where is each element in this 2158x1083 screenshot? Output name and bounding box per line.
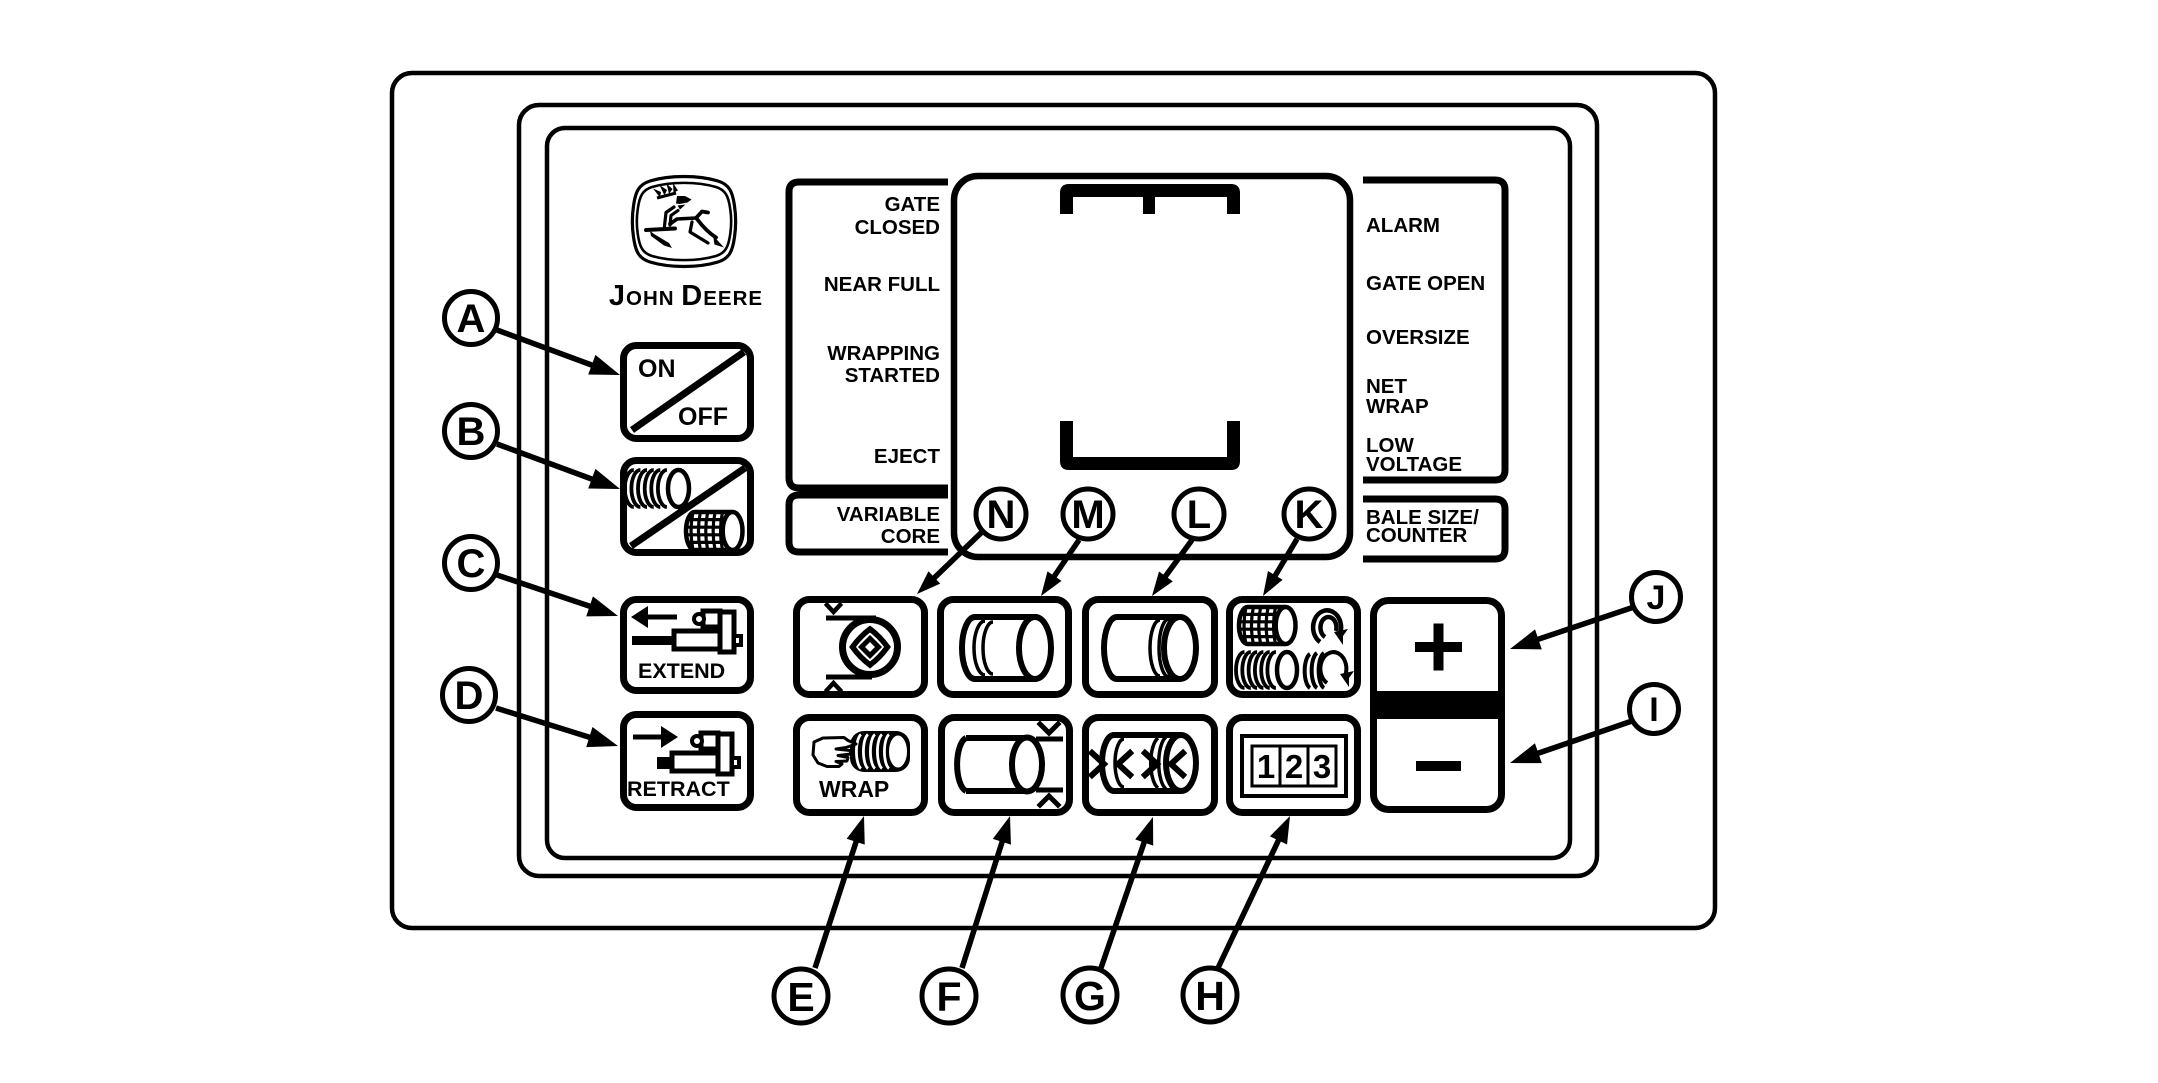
svg-text:D: D: [455, 674, 484, 718]
svg-text:WRAPPING: WRAPPING: [827, 342, 940, 365]
svg-text:CLOSED: CLOSED: [855, 216, 940, 239]
svg-text:E: E: [787, 974, 814, 1020]
svg-text:VOLTAGE: VOLTAGE: [1366, 453, 1462, 476]
svg-text:L: L: [1187, 493, 1211, 537]
svg-text:H: H: [1195, 973, 1225, 1019]
svg-text:RETRACT: RETRACT: [627, 777, 730, 801]
svg-text:G: G: [1074, 973, 1106, 1019]
svg-text:3: 3: [1313, 748, 1331, 785]
svg-text:ALARM: ALARM: [1366, 214, 1440, 237]
svg-text:ON: ON: [638, 355, 676, 383]
svg-text:GATE OPEN: GATE OPEN: [1366, 272, 1485, 295]
svg-text:M: M: [1071, 493, 1104, 537]
svg-text:J: J: [1647, 579, 1666, 617]
svg-text:NEAR FULL: NEAR FULL: [824, 273, 940, 296]
svg-text:VARIABLE: VARIABLE: [837, 503, 940, 526]
svg-text:EXTEND: EXTEND: [638, 659, 725, 683]
svg-text:B: B: [457, 410, 486, 454]
svg-text:N: N: [987, 493, 1016, 537]
svg-text:WRAP: WRAP: [1366, 395, 1429, 418]
svg-text:K: K: [1295, 493, 1324, 537]
svg-text:COUNTER: COUNTER: [1366, 524, 1468, 547]
svg-text:1: 1: [1257, 748, 1275, 785]
svg-text:I: I: [1649, 691, 1658, 729]
svg-text:F: F: [936, 974, 961, 1020]
svg-text:EJECT: EJECT: [874, 445, 941, 468]
svg-text:C: C: [457, 542, 486, 586]
svg-text:STARTED: STARTED: [845, 364, 940, 387]
svg-text:OVERSIZE: OVERSIZE: [1366, 326, 1470, 349]
svg-text:2: 2: [1285, 748, 1303, 785]
svg-text:WRAP: WRAP: [819, 776, 889, 802]
svg-text:A: A: [457, 297, 486, 341]
svg-text:OFF: OFF: [678, 403, 728, 431]
svg-text:CORE: CORE: [881, 525, 940, 548]
svg-text:JOHN DEERE: JOHN DEERE: [609, 280, 763, 312]
svg-text:GATE: GATE: [885, 193, 940, 216]
